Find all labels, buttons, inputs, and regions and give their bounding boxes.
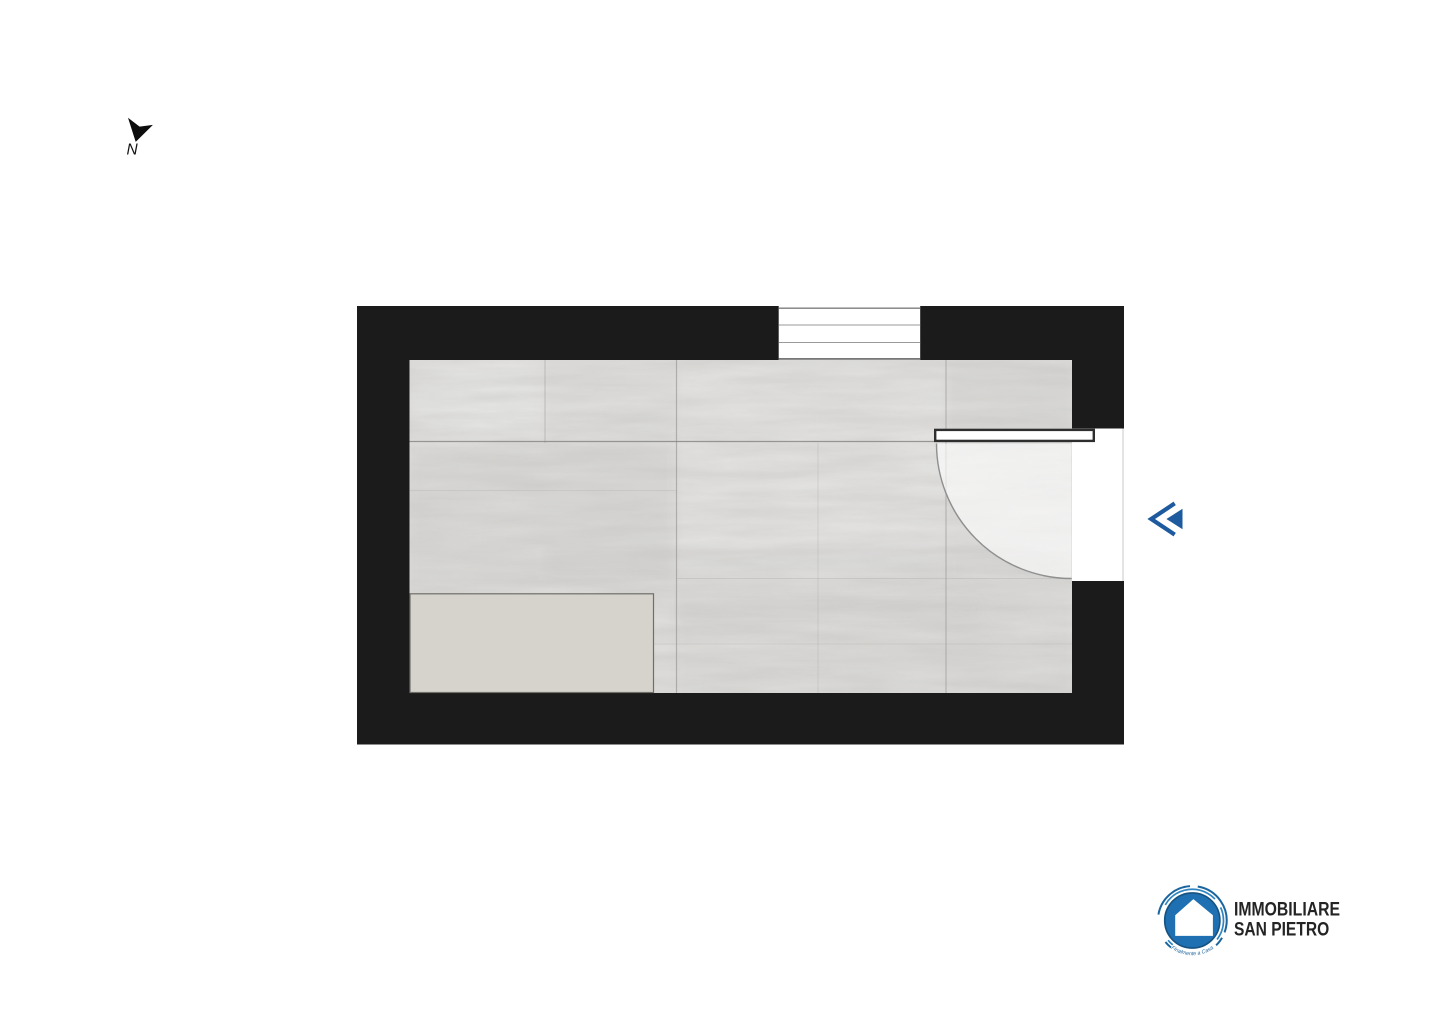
svg-text:N: N: [127, 142, 139, 159]
svg-text:IMMOBILIARE: IMMOBILIARE: [1234, 900, 1340, 921]
svg-text:SAN PIETRO: SAN PIETRO: [1234, 920, 1329, 941]
